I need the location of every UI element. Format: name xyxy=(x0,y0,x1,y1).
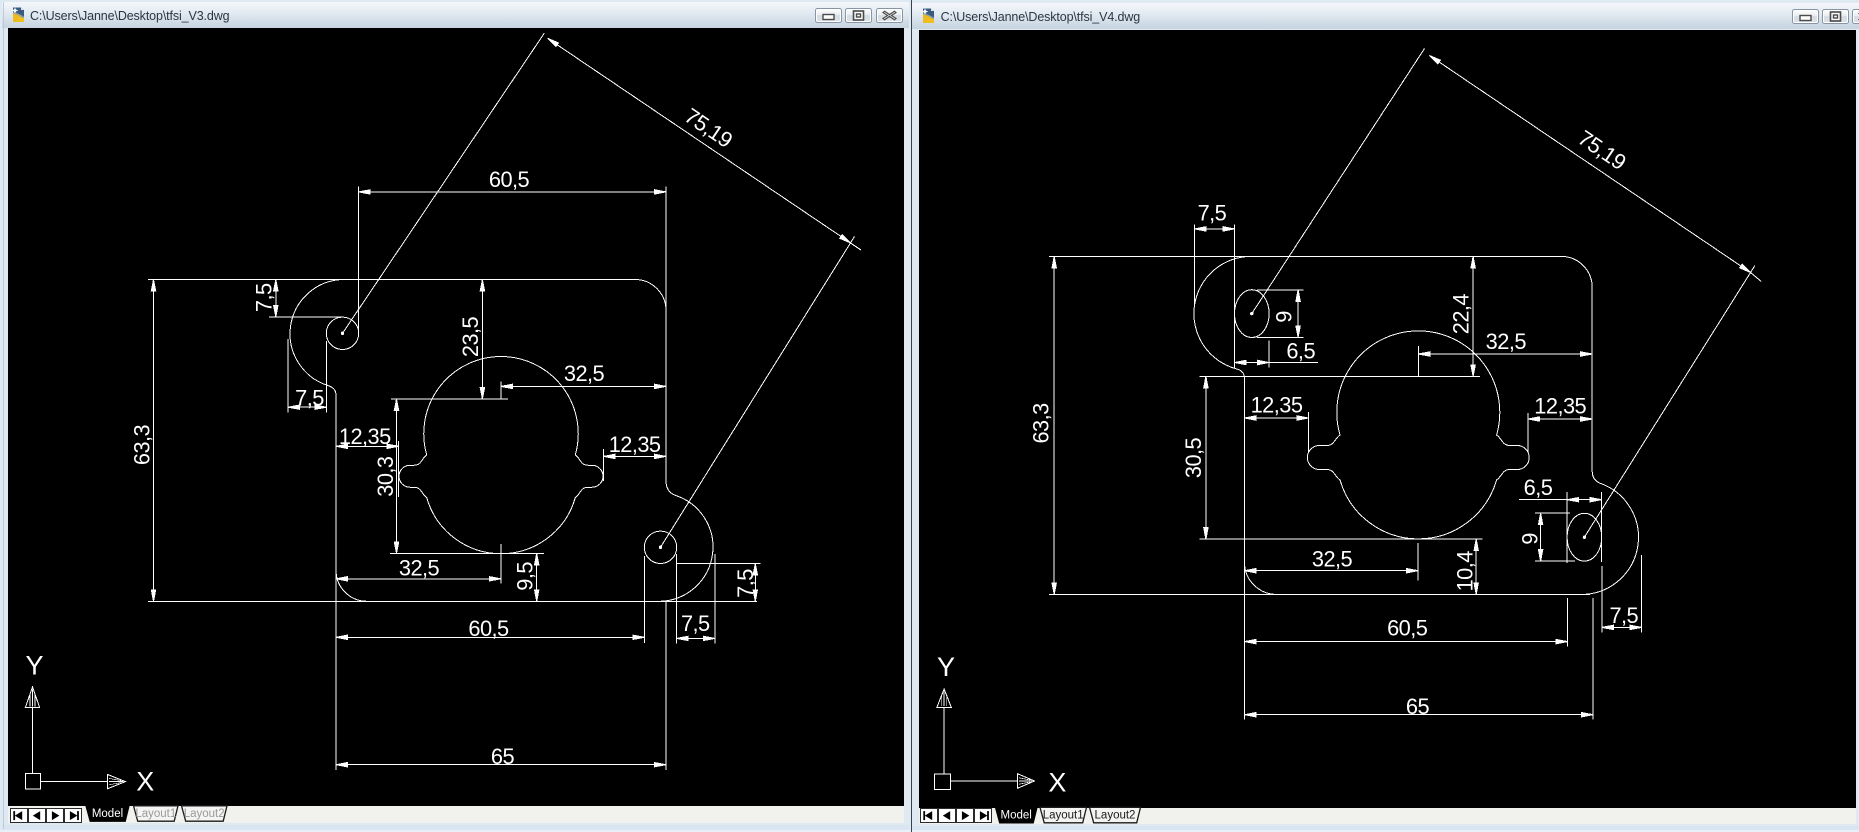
svg-text:65: 65 xyxy=(491,744,515,769)
svg-text:63,3: 63,3 xyxy=(130,424,155,465)
svg-text:9: 9 xyxy=(1271,311,1296,323)
svg-text:12,35: 12,35 xyxy=(339,424,391,449)
svg-text:32,5: 32,5 xyxy=(399,556,440,581)
svg-text:7,5: 7,5 xyxy=(1198,201,1227,226)
svg-text:12,35: 12,35 xyxy=(1251,392,1303,417)
svg-text:60,5: 60,5 xyxy=(1387,616,1428,641)
svg-text:60,5: 60,5 xyxy=(468,616,509,641)
svg-text:30,3: 30,3 xyxy=(373,456,398,497)
svg-text:7,5: 7,5 xyxy=(295,385,324,410)
svg-text:30,5: 30,5 xyxy=(1181,437,1206,478)
svg-text:63,3: 63,3 xyxy=(1028,403,1053,444)
svg-text:65: 65 xyxy=(1406,694,1430,719)
svg-text:32,5: 32,5 xyxy=(1312,546,1353,571)
svg-text:7,5: 7,5 xyxy=(252,283,277,312)
svg-text:23,5: 23,5 xyxy=(458,316,483,357)
svg-text:6,5: 6,5 xyxy=(1286,339,1315,364)
svg-text:12,35: 12,35 xyxy=(609,432,661,457)
svg-text:22,4: 22,4 xyxy=(1449,294,1474,335)
svg-text:32,5: 32,5 xyxy=(1486,329,1527,354)
svg-text:9: 9 xyxy=(1518,533,1543,545)
svg-text:X: X xyxy=(1048,768,1066,798)
svg-text:7,5: 7,5 xyxy=(733,569,758,598)
svg-text:12,35: 12,35 xyxy=(1534,394,1586,419)
svg-text:7,5: 7,5 xyxy=(1609,603,1638,628)
svg-text:7,5: 7,5 xyxy=(681,611,710,636)
svg-text:60,5: 60,5 xyxy=(489,167,530,192)
svg-text:75,19: 75,19 xyxy=(1573,125,1630,175)
svg-text:32,5: 32,5 xyxy=(564,361,605,386)
svg-text:10,4: 10,4 xyxy=(1452,551,1477,592)
svg-text:9,5: 9,5 xyxy=(512,562,537,591)
svg-text:Y: Y xyxy=(25,651,43,681)
svg-text:X: X xyxy=(136,767,154,797)
svg-text:Y: Y xyxy=(937,652,955,682)
svg-text:75,19: 75,19 xyxy=(680,103,737,153)
svg-text:6,5: 6,5 xyxy=(1524,475,1553,500)
